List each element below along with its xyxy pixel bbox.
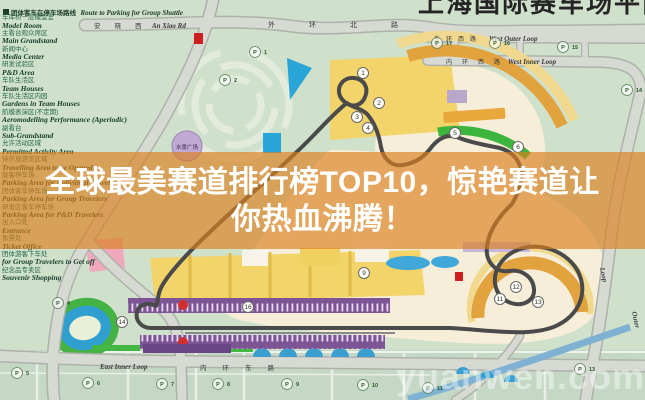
parking-number: 5 <box>26 371 29 377</box>
turn-number: 13 <box>534 299 542 306</box>
legend-item: 新闻中心 Media Center <box>2 46 192 62</box>
legend-item-en: Model Room <box>2 22 192 30</box>
legend-item-en: Media Center <box>2 53 192 61</box>
parking-number: 10 <box>372 383 378 389</box>
pond <box>431 256 459 268</box>
parking-letter: P <box>625 88 629 94</box>
parking-number: 17 <box>446 41 452 47</box>
legend-item-en: for Group Travelers to Get off <box>2 258 192 266</box>
pool <box>263 133 281 153</box>
grandstand-marker <box>178 300 188 310</box>
legend-item: 副看台 Sub-Grandstand <box>2 125 192 141</box>
turn-number: 14 <box>118 319 126 326</box>
legend-item: 主看台观众席区 Main Grandstand <box>2 30 192 46</box>
legend-item: 车库桥一层模型室 Model Room <box>2 14 192 30</box>
legend-item-en: Gardens in Team Houses <box>2 100 192 108</box>
parking-number: 9 <box>296 382 299 388</box>
parking-number: 16 <box>504 41 510 47</box>
turn-number: 9 <box>362 270 366 277</box>
legend-item: 纪念品专卖区 Souvenir Shopping <box>2 267 192 283</box>
parking-letter: P <box>160 382 164 388</box>
turn-number: 12 <box>512 284 520 291</box>
road-label-west-inner-en: West Inner Loop <box>508 58 557 66</box>
paddock-building <box>242 250 268 266</box>
parking-number: 7 <box>171 382 174 388</box>
parking-number: 1 <box>264 50 267 56</box>
headline-line-1: 全球最美赛道排行榜TOP10，惊艳赛道让 <box>45 164 600 201</box>
small-purple-building <box>447 90 467 103</box>
parking-letter: P <box>15 371 19 377</box>
road-label-north-zh: 外环北路 <box>268 20 432 29</box>
turn-number: 11 <box>497 296 504 303</box>
parking-letter: P <box>223 78 227 84</box>
parking-number: 8 <box>227 382 230 388</box>
green-strip <box>92 345 140 351</box>
parking-letter: P <box>493 41 497 47</box>
pond <box>386 256 430 270</box>
grandstand-label-box <box>143 344 231 353</box>
parking-number: 14 <box>636 88 643 94</box>
parking-letter: P <box>253 50 257 56</box>
parking-number: 6 <box>97 381 100 387</box>
road-label-west-inner-zh: 内环西路 <box>446 58 510 66</box>
parking-letter: P <box>216 382 220 388</box>
parking-number: 15 <box>572 45 578 51</box>
map-title-partial: 上海国际赛车场平面图 <box>418 0 645 20</box>
legend-item: 研发试验区 P&D Area <box>2 61 192 77</box>
turn-number: 16 <box>244 304 252 311</box>
parking-letter: P <box>435 41 439 47</box>
turn-number: 3 <box>355 114 359 121</box>
legend-item-en: Sub-Grandstand <box>2 132 192 140</box>
legend-item-en: P&D Area <box>2 69 192 77</box>
legend-item-en: Team Houses <box>2 85 192 93</box>
legend-item-en: Main Grandstand <box>2 37 192 45</box>
parking-letter: P <box>56 301 60 307</box>
turn-number: 5 <box>453 130 457 137</box>
legend-item: 团体游客下车处 for Group Travelers to Get off <box>2 251 192 267</box>
legend-item-en: Aeromodelling Performance (Aperiodic) <box>2 116 192 124</box>
watermark: yuanwen.com <box>396 356 645 398</box>
parking-letter: P <box>561 45 565 51</box>
legend-item: 车队生活区内园 Gardens in Team Houses <box>2 93 192 109</box>
legend-item: 航模表演区(不定期) Aeromodelling Performance (Ap… <box>2 109 192 125</box>
parking-number: 2 <box>234 78 237 84</box>
parking-letter: P <box>285 382 289 388</box>
legend-item-en: Souvenir Shopping <box>2 274 192 282</box>
parking-letter: P <box>361 383 365 389</box>
road-label-east-inner-zh: 内环东路 <box>200 363 290 372</box>
road-label-east-inner-en: East Inner Loop <box>99 363 148 371</box>
main-grandstand-strip <box>128 298 390 313</box>
parking-letter: P <box>86 381 90 387</box>
headline-line-2: 你热血沸腾！ <box>231 201 414 238</box>
headline-overlay: 全球最美赛道排行榜TOP10，惊艳赛道让 你热血沸腾！ <box>0 152 645 249</box>
turn-number: 2 <box>377 100 381 107</box>
legend-item: 车队生活区 Team Houses <box>2 77 192 93</box>
circuit-map-page: 水景广场 安晓西 An Xiao Rd 外环北路 外环西路 West Outer… <box>0 0 645 400</box>
red-marker <box>455 272 463 281</box>
turn-number: 1 <box>361 70 365 77</box>
turn-number: 6 <box>516 144 520 151</box>
turn-number: 4 <box>366 125 370 132</box>
red-marker <box>194 33 203 44</box>
paddock-building <box>300 248 340 266</box>
